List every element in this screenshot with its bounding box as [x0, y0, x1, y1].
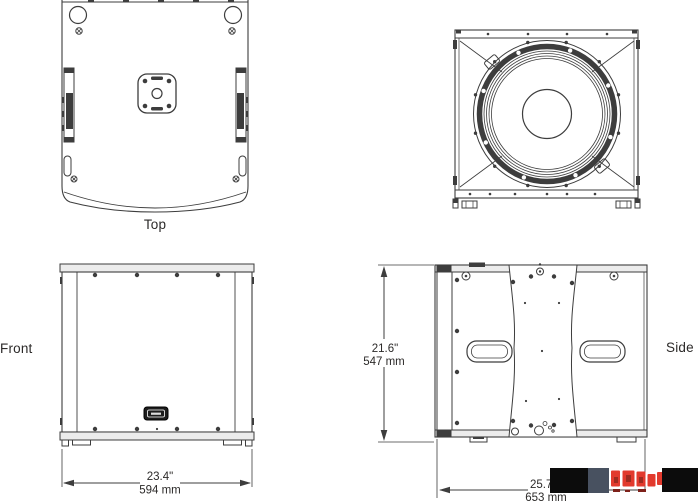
obscured-logo	[550, 468, 698, 493]
arrow-left-icon	[63, 480, 74, 486]
top-view	[55, 0, 255, 240]
slot-left	[64, 156, 71, 176]
side-depth-mm: 653 mm	[525, 492, 567, 504]
slot-right	[239, 156, 246, 176]
front-view: 23.4" 594 mm	[55, 258, 260, 504]
mounting-plate	[138, 74, 176, 113]
woofer-view-drawing	[440, 20, 660, 215]
front-width-mm: 594 mm	[139, 485, 181, 497]
logo-red-glyphs	[611, 471, 663, 493]
front-view-label: Front	[0, 341, 33, 356]
side-view-label: Side	[666, 340, 694, 355]
side-height-mm: 547 mm	[363, 356, 405, 368]
handle-left	[467, 341, 512, 362]
side-rail-right	[236, 68, 249, 142]
brand-badge	[144, 407, 168, 420]
side-view: 21.6" 547 mm	[355, 258, 700, 504]
woofer-view	[440, 20, 660, 215]
mounting-plate-side	[509, 263, 577, 437]
arrow-right-icon	[240, 480, 251, 486]
logo-slate-block	[588, 468, 609, 493]
arrow-left-icon	[439, 487, 450, 493]
side-height-inches: 21.6"	[372, 343, 398, 355]
arrow-down-icon	[381, 430, 388, 441]
cabinet-outline-top-view	[62, 0, 248, 212]
side-rail-left	[62, 68, 75, 142]
front-view-drawing: 23.4" 594 mm	[55, 258, 260, 504]
width-dimension: 23.4" 594 mm	[62, 449, 252, 497]
top-view-drawing	[55, 0, 255, 240]
screw-bottom-right	[233, 176, 239, 182]
logo-black-block-left	[550, 468, 588, 493]
arrow-up-icon	[381, 266, 388, 277]
woofer-driver	[474, 41, 621, 188]
side-view-drawing: 21.6" 547 mm	[355, 258, 700, 504]
dust-cap	[523, 90, 572, 139]
screw-bottom-left	[71, 176, 77, 182]
logo-black-block-right	[662, 468, 698, 492]
height-dimension: 21.6" 547 mm	[363, 265, 434, 442]
screw-top-left	[76, 28, 82, 34]
front-width-inches: 23.4"	[147, 471, 173, 483]
feet-woofer-view	[453, 199, 640, 208]
pole-cup-left	[70, 7, 87, 24]
pole-cup-right	[225, 7, 242, 24]
screw-top-right	[229, 28, 235, 34]
handle-right	[580, 341, 625, 362]
top-view-label: Top	[55, 217, 255, 232]
feet-side-view	[470, 437, 636, 442]
dimension-drawing-canvas: Top	[0, 0, 700, 504]
feet-front-view	[62, 440, 252, 446]
